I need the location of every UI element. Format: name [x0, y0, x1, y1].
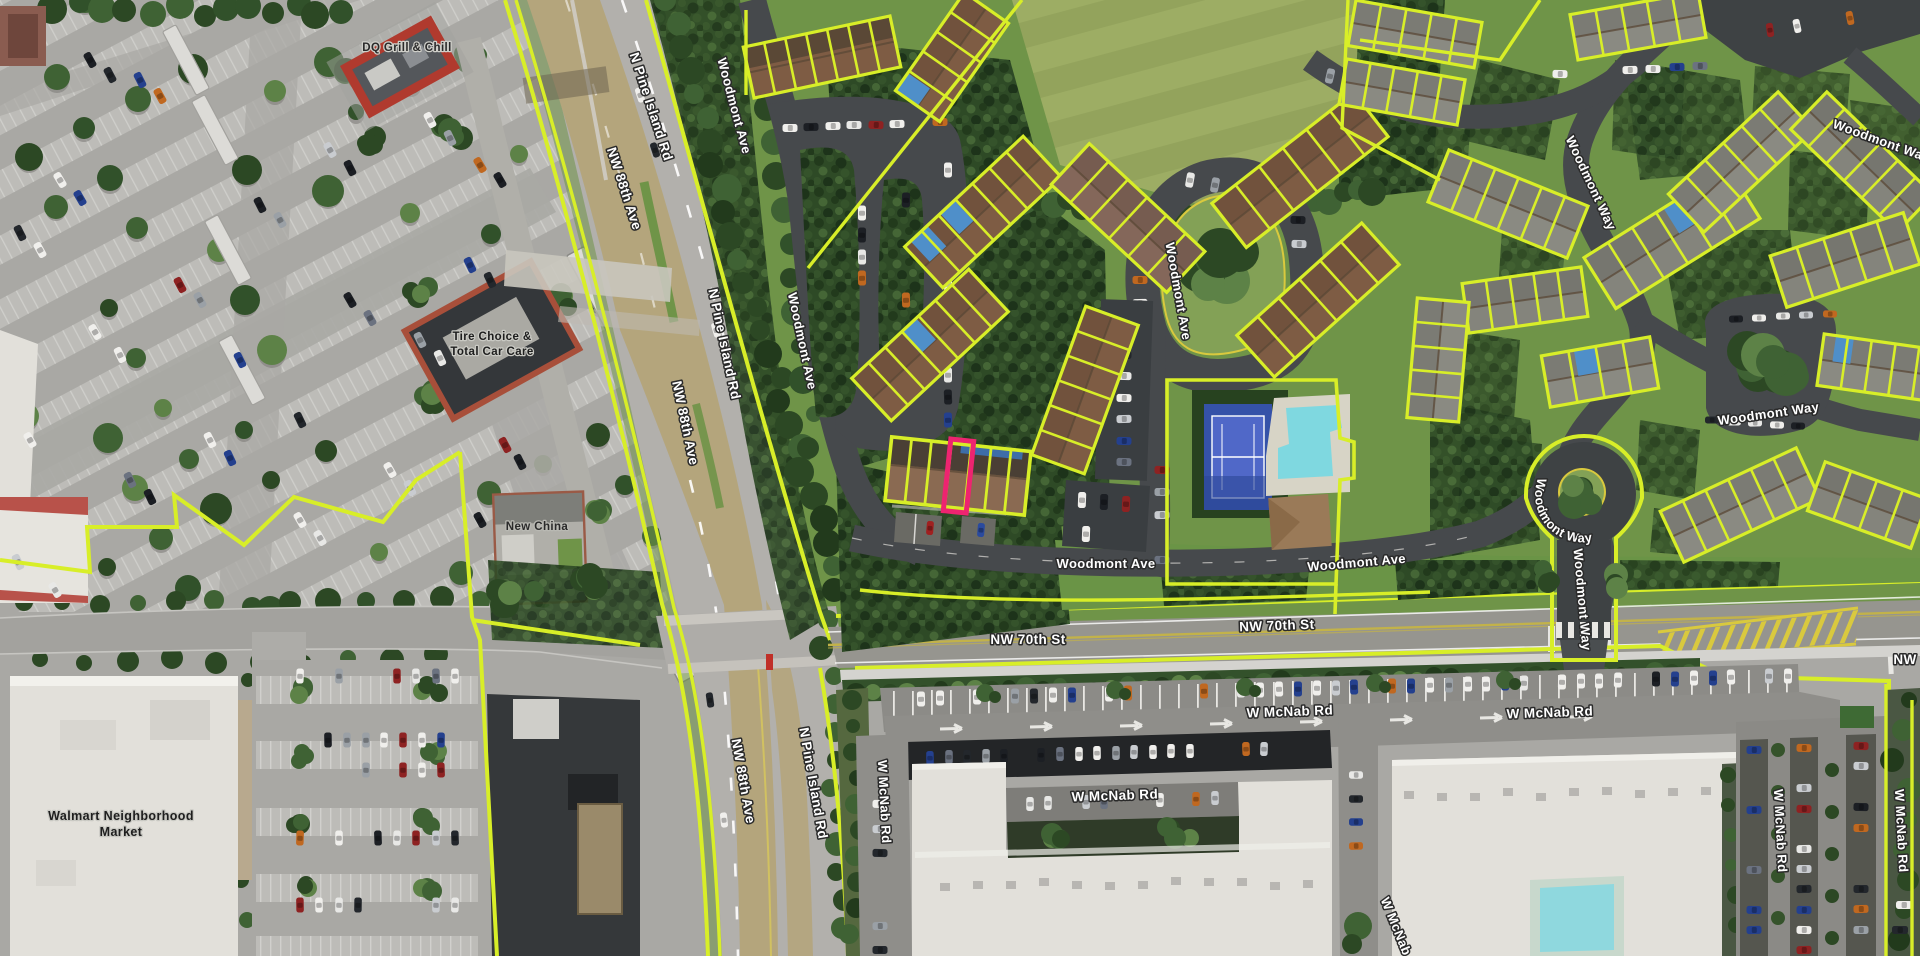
- svg-text:NW 70th St: NW 70th St: [990, 632, 1065, 647]
- svg-text:Tire Choice &: Tire Choice &: [452, 331, 531, 343]
- svg-text:Total Car Care: Total Car Care: [450, 346, 533, 358]
- svg-text:W McNab Rd: W McNab Rd: [1071, 786, 1158, 804]
- svg-text:W McNab Rd: W McNab Rd: [1506, 703, 1593, 721]
- svg-text:Walmart Neighborhood: Walmart Neighborhood: [48, 809, 194, 823]
- svg-text:NW 70th St: NW 70th St: [1239, 617, 1315, 635]
- svg-text:DQ Grill & Chill: DQ Grill & Chill: [362, 42, 451, 54]
- svg-text:W McNab Rd: W McNab Rd: [1246, 702, 1333, 720]
- svg-text:Market: Market: [100, 825, 143, 839]
- svg-text:NW: NW: [1893, 652, 1916, 667]
- svg-text:Woodmont Ave: Woodmont Ave: [1057, 556, 1156, 571]
- svg-text:New China: New China: [506, 521, 569, 533]
